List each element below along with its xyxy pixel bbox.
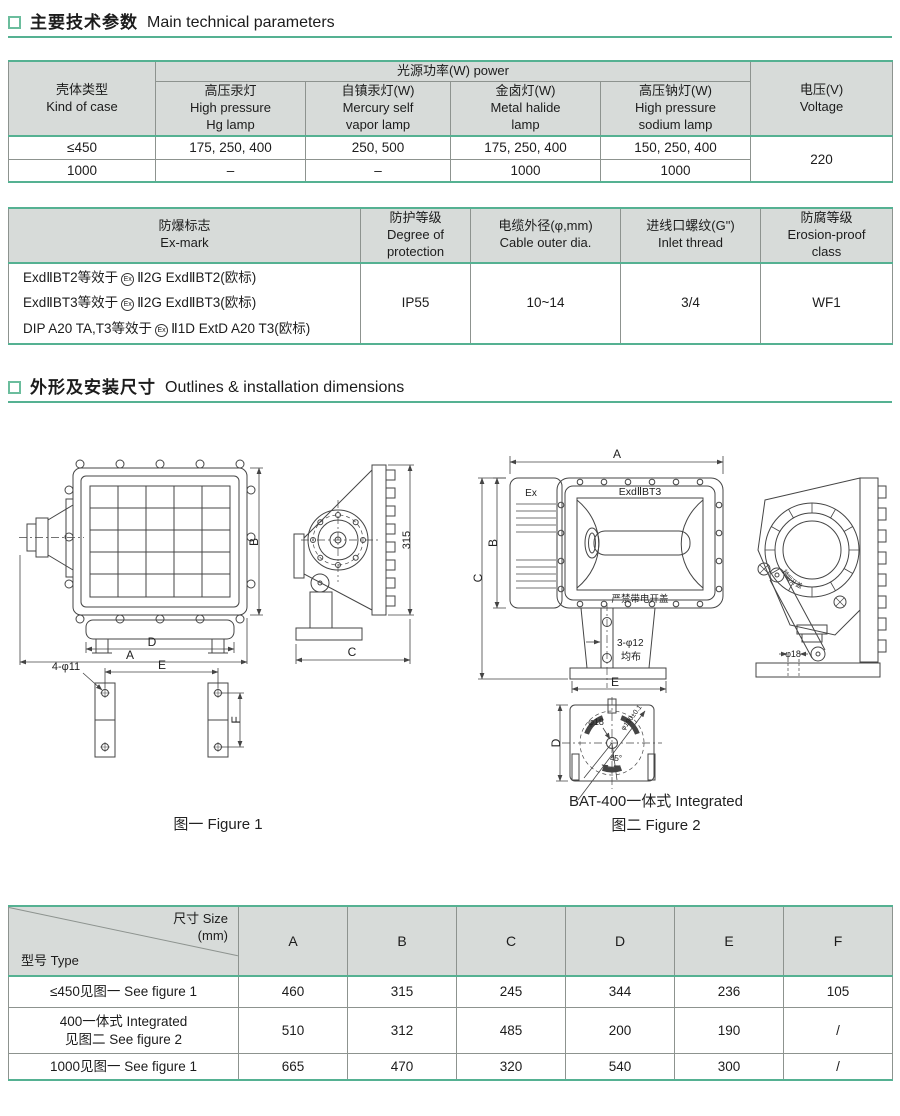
section1-title-en: Main technical parameters (147, 15, 335, 31)
value-cell: 175, 250, 400 (156, 136, 306, 159)
figure1-front-view (19, 460, 255, 757)
fig2-dim-e-label: E (611, 675, 619, 689)
section2-title-zh: 外形及安装尺寸 (30, 379, 156, 396)
value-cell: 312 (348, 1008, 457, 1054)
outline-drawings: D A B E F 4-φ11 315 C 图一 Figure 1 A B C … (0, 420, 900, 890)
value-cell-cable: 10~14 (471, 263, 621, 344)
header-metal-halide-lamp: 金卤灯(W) Metal halide lamp (451, 81, 601, 136)
value-cell: 540 (566, 1054, 675, 1080)
fig2-exd-mark-label: ExdⅡBT3 (619, 486, 662, 498)
fig2-holes-note-label: 均布 (621, 651, 641, 663)
value-cell: 485 (457, 1008, 566, 1054)
fig1-dim-f-label: F (229, 716, 243, 723)
table-row: ExdⅡBT2等效于ExⅡ2G ExdⅡBT2(欧标) ExdⅡBT3等效于Ex… (9, 263, 893, 344)
dimensions-table: 尺寸 Size (mm) 型号 Type A B C D E F ≤450见图一… (8, 905, 893, 1081)
header-hg-lamp: 高压汞灯 High pressure Hg lamp (156, 81, 306, 136)
header-sodium-lamp: 高压钠灯(W) High pressure sodium lamp (601, 81, 751, 136)
value-cell: 344 (566, 976, 675, 1008)
fig2-angle-label: 45° (610, 754, 622, 763)
value-cell: 460 (239, 976, 348, 1008)
header-cable-dia: 电缆外径(φ,mm) Cable outer dia. (471, 208, 621, 263)
fig1-holes-label: 4-φ11 (52, 661, 80, 673)
fig2-dim-a-label: A (613, 447, 621, 461)
figure2-front-view (510, 478, 723, 688)
fig1-315-label: 315 (401, 531, 413, 549)
value-cell: 200 (566, 1008, 675, 1054)
atex-ex-icon: Ex (155, 324, 168, 337)
fig2-dia-center-label: φ18 (588, 717, 604, 727)
corner-type-label: 型号 Type (21, 953, 79, 970)
table-row: ≤450见图一 See figure 1 460 315 245 344 236… (9, 976, 893, 1008)
value-cell-erosion: WF1 (761, 263, 893, 344)
fig1-dim-b-label: B (247, 538, 261, 546)
header-voltage: 电压(V) Voltage (751, 61, 893, 136)
header-mercury-self-lamp: 自镇汞灯(W) Mercury self vapor lamp (306, 81, 451, 136)
value-cell: 1000 (601, 159, 751, 182)
atex-ex-icon: Ex (121, 273, 134, 286)
ex-mark-line: ExdⅡBT3等效于ExⅡ2G ExdⅡBT3(欧标) (23, 290, 356, 316)
value-cell: 665 (239, 1054, 348, 1080)
value-cell: 510 (239, 1008, 348, 1054)
figure2-side-view (756, 478, 886, 677)
value-cell: – (156, 159, 306, 182)
section2-title-en: Outlines & installation dimensions (165, 380, 404, 396)
fig1-dim-a-label: A (126, 648, 134, 662)
value-cell: 105 (784, 976, 893, 1008)
value-cell: 175, 250, 400 (451, 136, 601, 159)
value-cell: 236 (675, 976, 784, 1008)
value-cell-inlet: 3/4 (621, 263, 761, 344)
value-cell-ip: IP55 (361, 263, 471, 344)
value-cell: / (784, 1008, 893, 1054)
value-cell: 150, 250, 400 (601, 136, 751, 159)
table-row: ≤450 175, 250, 400 250, 500 175, 250, 40… (9, 136, 893, 159)
value-cell: – (306, 159, 451, 182)
fig2-ex-label: Ex (525, 488, 537, 499)
type-cell: 1000见图一 See figure 1 (9, 1054, 239, 1080)
value-cell: 250, 500 (306, 136, 451, 159)
value-cell: 245 (457, 976, 566, 1008)
ex-mark-table: 防爆标志 Ex-mark 防护等级 Degree of protection 电… (8, 207, 893, 345)
figure2-caption: 图二 Figure 2 (611, 817, 700, 834)
value-cell: ≤450 (9, 136, 156, 159)
fig1-dim-e-label: E (158, 658, 166, 672)
fig2-dia-base-label: φ18 (785, 649, 801, 659)
corner-size-label: 尺寸 Size (mm) (173, 911, 228, 945)
ex-mark-line: DIP A20 TA,T3等效于ExⅡ1D ExtD A20 T3(欧标) (23, 316, 356, 342)
value-cell: 1000 (9, 159, 156, 182)
corner-header: 尺寸 Size (mm) 型号 Type (9, 906, 239, 976)
section-marker-icon (8, 381, 21, 394)
fig2-cover-note-label: 断电10分钟后开盖 (0, 420, 804, 591)
ex-mark-line: ExdⅡBT2等效于ExⅡ2G ExdⅡBT2(欧标) (23, 265, 356, 291)
fig2-holes-label: 3-φ12 (617, 638, 644, 649)
section1-title-zh: 主要技术参数 (30, 14, 138, 31)
header-ex-mark: 防爆标志 Ex-mark (9, 208, 361, 263)
figure1-side-view (294, 465, 395, 640)
value-cell: 315 (348, 976, 457, 1008)
value-cell: 1000 (451, 159, 601, 182)
header-power-group: 光源功率(W) power (156, 61, 751, 81)
type-cell: 400一体式 Integrated 见图二 See figure 2 (9, 1008, 239, 1054)
section-outlines-header: 外形及安装尺寸 Outlines & installation dimensio… (8, 373, 892, 403)
header-protection-degree: 防护等级 Degree of protection (361, 208, 471, 263)
section-marker-icon (8, 16, 21, 29)
main-params-table: 壳体类型 Kind of case 光源功率(W) power 电压(V) Vo… (8, 60, 893, 183)
header-dim-a: A (239, 906, 348, 976)
table-row: 400一体式 Integrated 见图二 See figure 2 510 3… (9, 1008, 893, 1054)
fig1-dim-d-label: D (148, 635, 157, 649)
figure2-model-label: BAT-400一体式 Integrated (569, 793, 743, 810)
fig2-dim-b-label: B (486, 539, 500, 547)
fig2-dim-d-label: D (549, 738, 563, 747)
header-kind-of-case: 壳体类型 Kind of case (9, 61, 156, 136)
value-cell: 190 (675, 1008, 784, 1054)
header-dim-f: F (784, 906, 893, 976)
value-cell: 470 (348, 1054, 457, 1080)
table-row: 1000见图一 See figure 1 665 470 320 540 300… (9, 1054, 893, 1080)
header-erosion-class: 防腐等级 Erosion-proof class (761, 208, 893, 263)
atex-ex-icon: Ex (121, 298, 134, 311)
figure1-caption: 图一 Figure 1 (173, 816, 262, 833)
value-cell: / (784, 1054, 893, 1080)
header-dim-c: C (457, 906, 566, 976)
ex-mark-list: ExdⅡBT2等效于ExⅡ2G ExdⅡBT2(欧标) ExdⅡBT3等效于Ex… (9, 263, 361, 344)
header-dim-b: B (348, 906, 457, 976)
fig2-dim-c-label: C (471, 573, 485, 582)
header-dim-e: E (675, 906, 784, 976)
header-dim-d: D (566, 906, 675, 976)
value-cell-voltage: 220 (751, 136, 893, 182)
section-main-parameters-header: 主要技术参数 Main technical parameters (8, 8, 892, 38)
value-cell: 320 (457, 1054, 566, 1080)
drawing-labels: D A B E F 4-φ11 315 C 图一 Figure 1 A B C … (0, 420, 804, 834)
type-cell: ≤450见图一 See figure 1 (9, 976, 239, 1008)
header-inlet-thread: 进线口螺纹(G") Inlet thread (621, 208, 761, 263)
fig2-warning-label: 严禁带电开盖 (611, 593, 669, 605)
value-cell: 300 (675, 1054, 784, 1080)
fig1-dim-c-label: C (348, 645, 357, 659)
